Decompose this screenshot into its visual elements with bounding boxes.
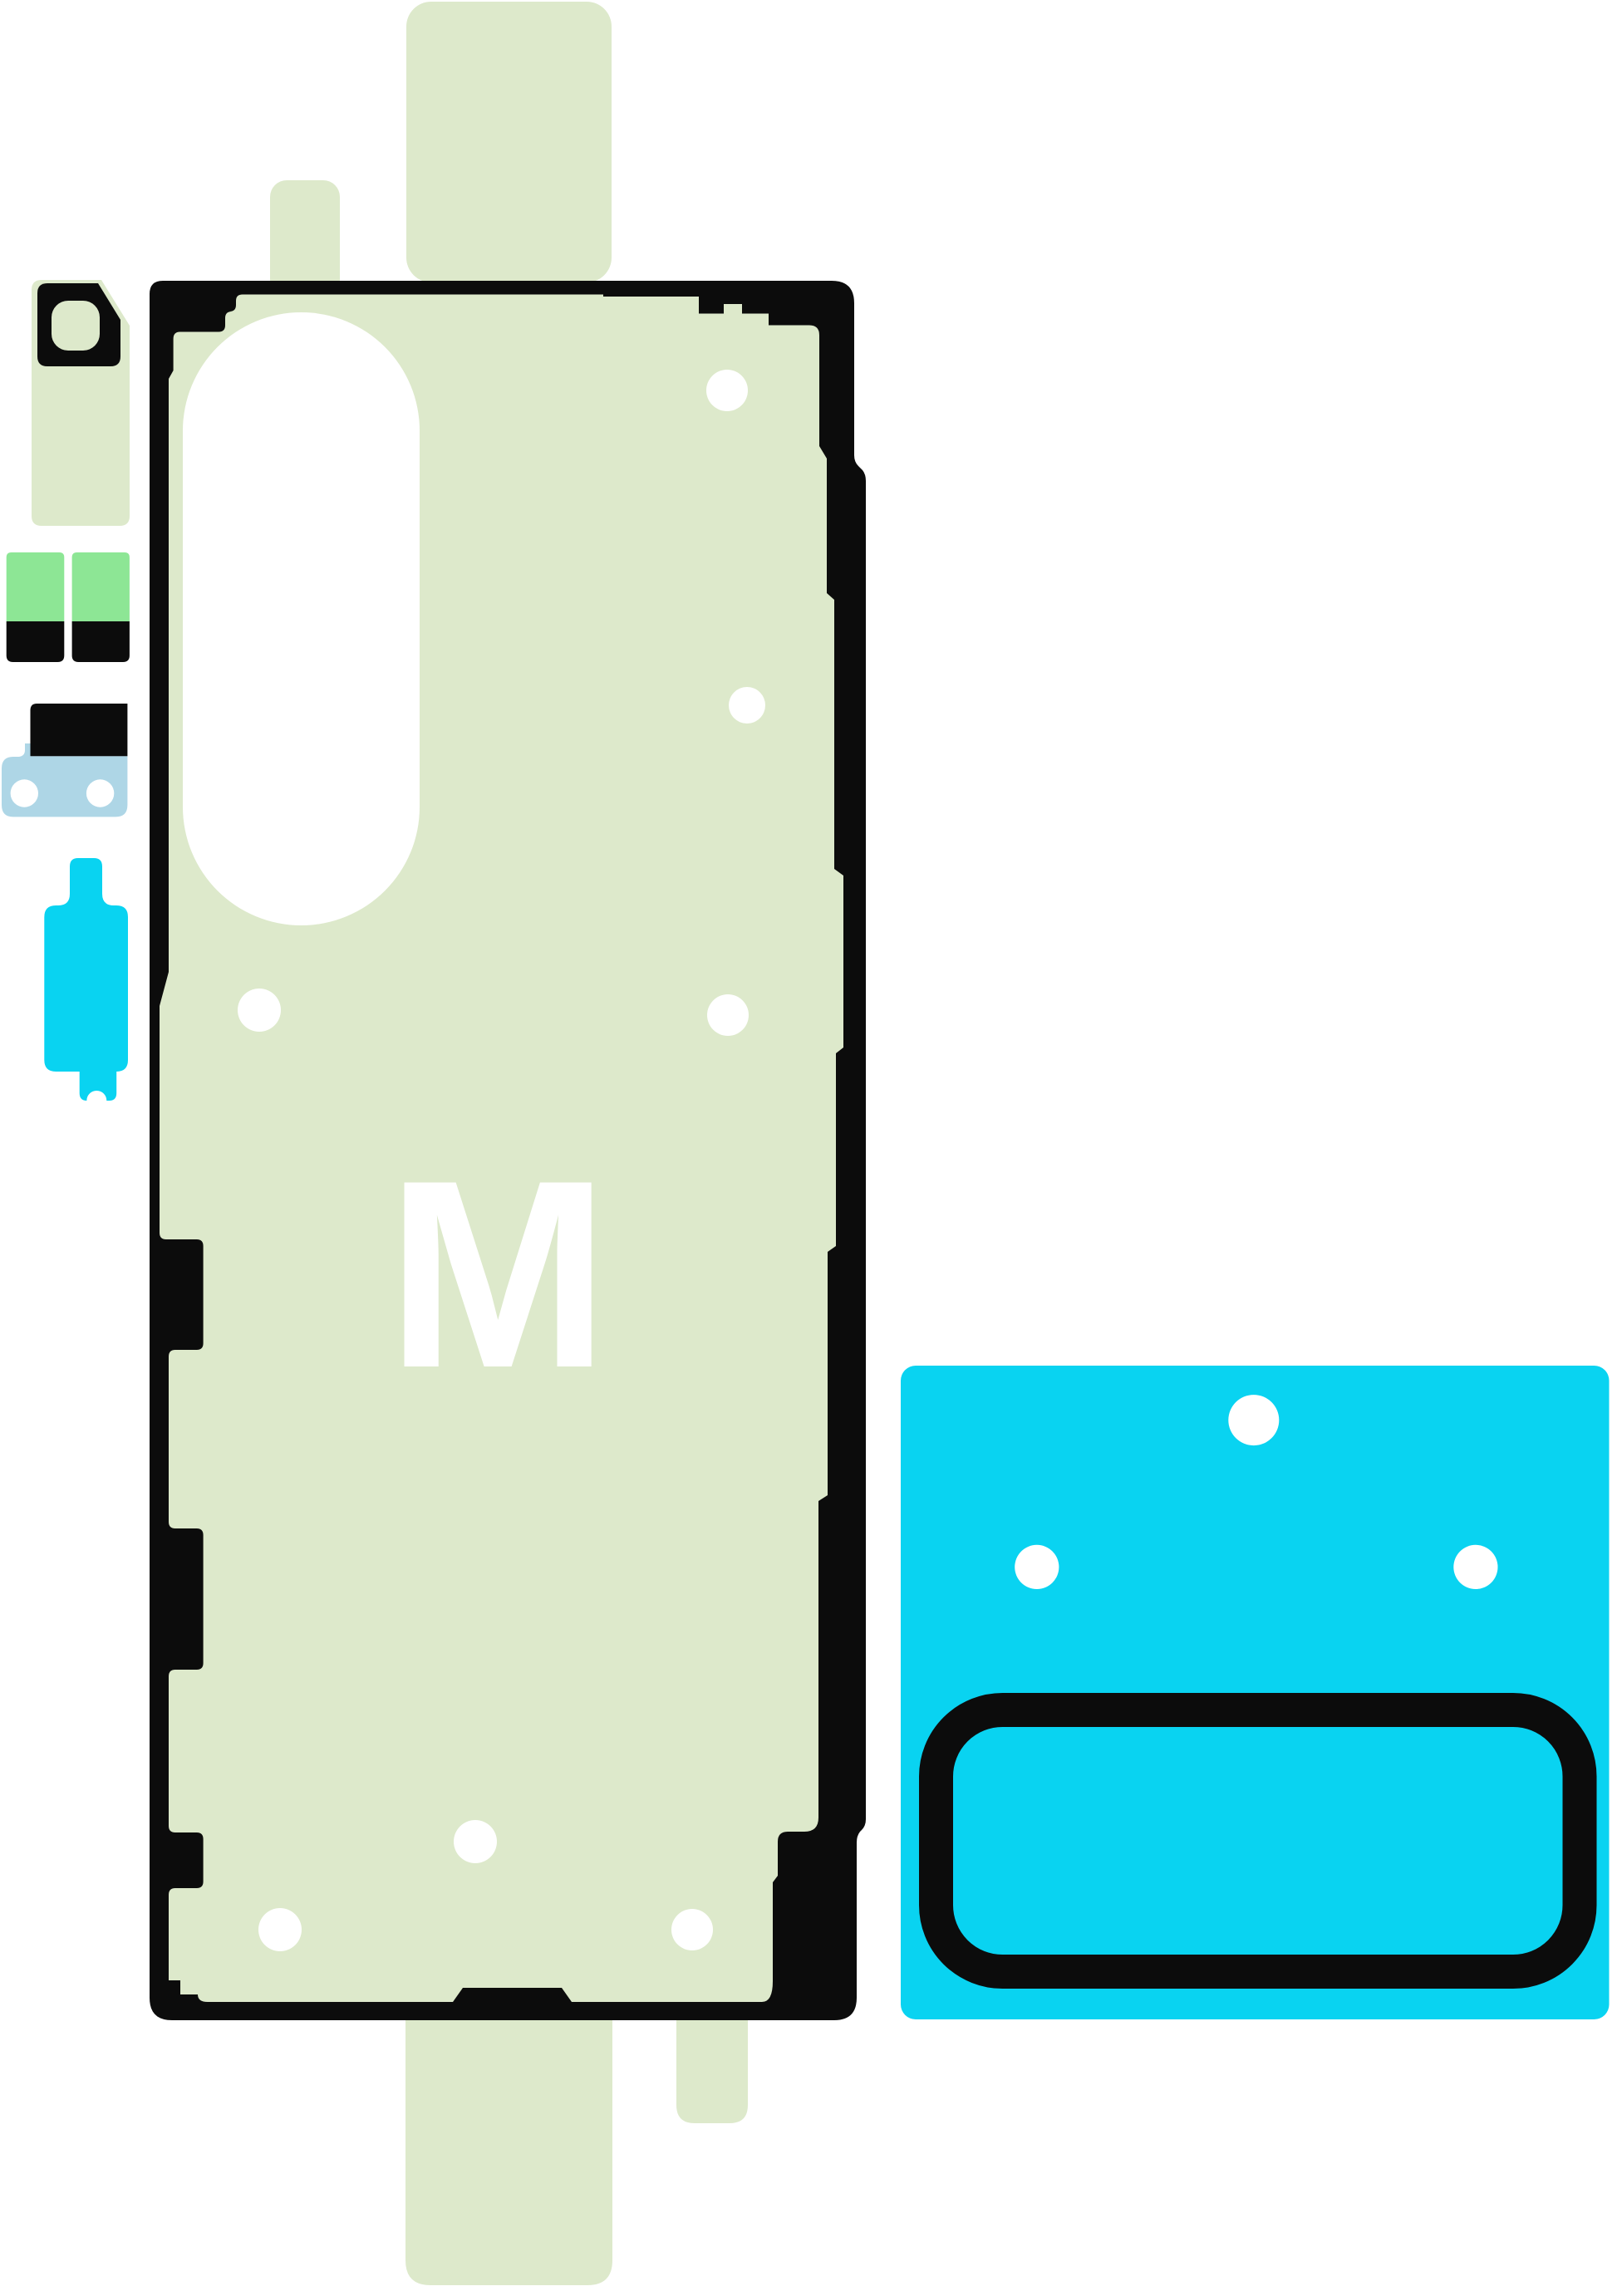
svg-text:M: M [386, 1126, 609, 1424]
